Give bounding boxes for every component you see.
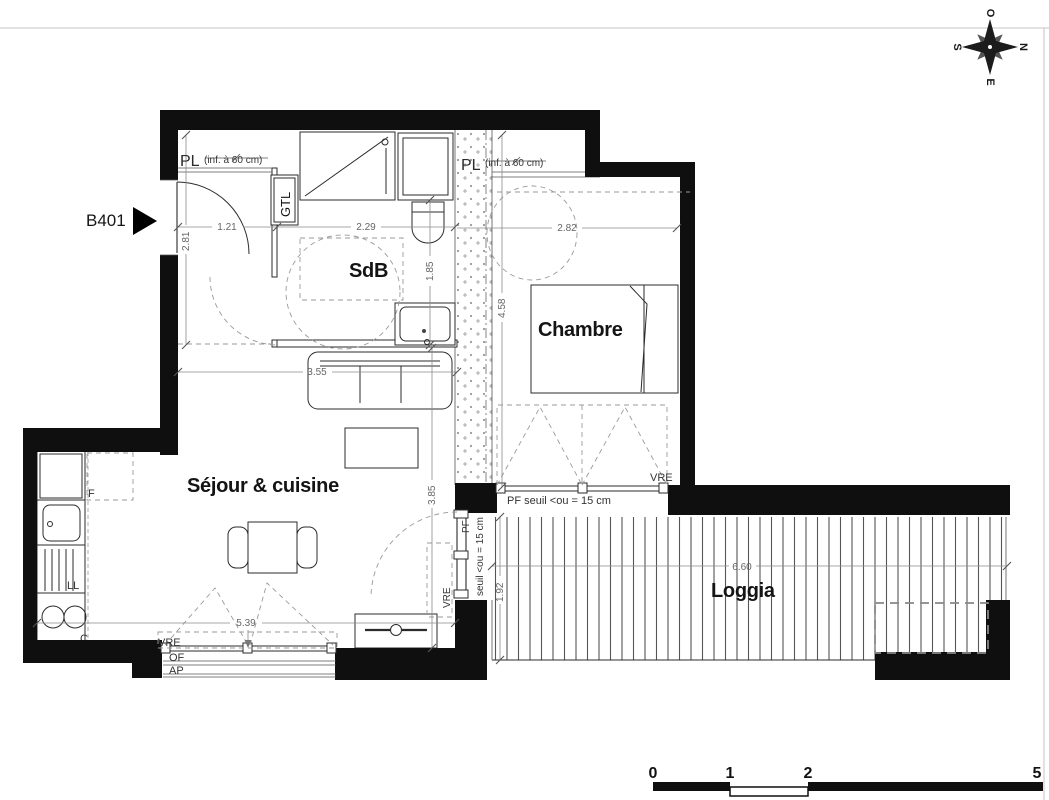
pl-entry-note: (inf. à 60 cm) xyxy=(204,155,262,166)
scale-tick-0: 0 xyxy=(649,765,658,782)
vre-loggia-door-label: VRE xyxy=(442,587,453,608)
dining-set xyxy=(228,522,317,573)
entrance-door xyxy=(160,180,249,255)
entrance-arrow-icon xyxy=(133,207,157,235)
ap-label: AP xyxy=(169,665,184,677)
room-label-sejour: Séjour & cuisine xyxy=(187,475,339,497)
pl-chambre-note: (inf. à 60 cm) xyxy=(485,158,543,169)
compass-east: E xyxy=(984,78,996,85)
shower xyxy=(300,132,395,200)
floor-plan-page: GTL F xyxy=(0,0,1049,800)
dim-chambre-depth: 4.58 xyxy=(497,298,508,318)
loggia-door xyxy=(371,510,468,617)
vanity-cabinet xyxy=(398,133,453,200)
scale-tick-1: 1 xyxy=(726,765,735,782)
vre-chambre-label: VRE xyxy=(650,472,673,484)
dim-sdb-depth: 1.85 xyxy=(425,261,436,281)
room-label-loggia: Loggia xyxy=(711,580,776,602)
pf-label: PF xyxy=(461,520,472,533)
pf-seuil-label: PF seuil <ou = 15 cm xyxy=(507,495,611,507)
of-label: OF xyxy=(169,652,185,664)
floor-plan: GTL F xyxy=(0,0,1049,800)
compass-north: N xyxy=(1017,43,1029,51)
fridge-label: F xyxy=(88,488,95,500)
dim-entry-width: 1.21 xyxy=(217,222,237,233)
sofa xyxy=(308,352,452,409)
page-border xyxy=(0,28,1049,800)
kitchen-counter: F LL C xyxy=(37,450,133,645)
dim-facade-width: 5.39 xyxy=(236,618,256,629)
compass-west: O xyxy=(984,9,996,18)
unit-label: B401 xyxy=(86,211,126,230)
seuil-label: seuil <ou = 15 cm xyxy=(475,517,486,596)
dim-entry-depth: 2.81 xyxy=(181,231,192,251)
dim-sejour-width: 3.55 xyxy=(307,367,327,378)
gtl-unit: GTL xyxy=(271,175,298,225)
vre-sejour-label: VRE xyxy=(158,637,181,649)
pl-chambre-label: PL xyxy=(461,157,481,174)
chambre-window xyxy=(496,405,668,493)
scale-tick-5: 5 xyxy=(1033,765,1042,782)
sdb-door-swing xyxy=(210,277,278,345)
unit-entrance: B401 xyxy=(86,207,157,235)
washbasin xyxy=(395,303,455,345)
sejour-window xyxy=(158,583,337,677)
scale-tick-2: 2 xyxy=(804,765,813,782)
gtl-label: GTL xyxy=(278,192,293,217)
room-label-chambre: Chambre xyxy=(538,319,623,341)
toilet xyxy=(412,202,444,243)
dim-loggia-depth: 1.92 xyxy=(495,582,506,602)
washer-label: LL xyxy=(67,580,79,592)
dim-sdb-width: 2.29 xyxy=(356,222,376,233)
dim-loggia-width: 6.60 xyxy=(732,562,752,573)
compass-icon: O N E S xyxy=(951,9,1029,86)
radiator xyxy=(355,614,437,648)
scale-bar: 0 1 2 5 xyxy=(649,765,1043,796)
duct-strip xyxy=(455,128,492,485)
dim-sejour-depth: 3.85 xyxy=(427,485,438,505)
dim-chambre-width: 2.82 xyxy=(557,223,577,234)
coffee-table xyxy=(345,428,418,468)
room-label-sdb: SdB xyxy=(349,260,388,282)
compass-south: S xyxy=(951,43,963,50)
pl-entry-label: PL xyxy=(180,153,200,170)
